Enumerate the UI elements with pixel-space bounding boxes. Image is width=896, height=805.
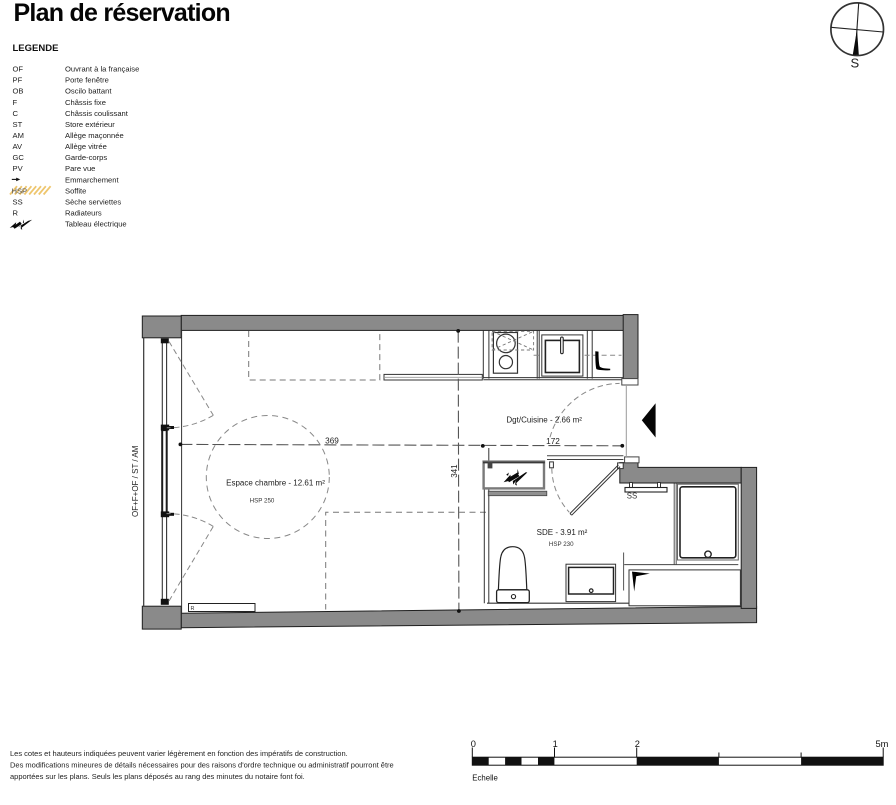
svg-text:Tableau électrique: Tableau électrique	[65, 220, 127, 229]
svg-text:PF: PF	[13, 76, 23, 85]
svg-text:GC: GC	[13, 153, 25, 162]
svg-text:Châssis coulissant: Châssis coulissant	[65, 109, 129, 118]
svg-text:HSP 250: HSP 250	[250, 497, 275, 504]
svg-text:Porte fenêtre: Porte fenêtre	[65, 76, 109, 85]
svg-text:172: 172	[546, 437, 560, 446]
svg-text:Garde-corps: Garde-corps	[65, 153, 107, 162]
svg-text:Echelle: Echelle	[472, 774, 498, 783]
svg-text:Dgt/Cuisine - 2.66 m²: Dgt/Cuisine - 2.66 m²	[506, 415, 582, 424]
svg-text:Ouvrant à la française: Ouvrant à la française	[65, 65, 139, 74]
svg-text:Soffite: Soffite	[65, 186, 86, 195]
svg-text:Allège maçonnée: Allège maçonnée	[65, 131, 124, 140]
svg-text:LEGENDE: LEGENDE	[13, 43, 59, 54]
svg-text:OF+F+OF / ST / AM: OF+F+OF / ST / AM	[131, 445, 140, 517]
svg-text:ST: ST	[13, 120, 23, 129]
svg-text:PV: PV	[13, 164, 24, 173]
svg-text:SDE - 3.91 m²: SDE - 3.91 m²	[537, 528, 588, 537]
svg-text:Allège vitrée: Allège vitrée	[65, 142, 107, 151]
svg-text:341: 341	[450, 464, 459, 478]
svg-text:SS: SS	[627, 492, 637, 501]
svg-text:apportées sur les plans. Seuls: apportées sur les plans. Seuls les plans…	[10, 772, 305, 781]
svg-text:2: 2	[635, 739, 640, 749]
svg-text:OB: OB	[13, 87, 24, 96]
svg-text:AM: AM	[13, 131, 24, 140]
svg-text:369: 369	[325, 437, 339, 446]
svg-text:OF: OF	[13, 65, 24, 74]
svg-text:C: C	[13, 109, 19, 118]
svg-text:Des modifications mineures de: Des modifications mineures de détails né…	[10, 761, 394, 770]
svg-text:Sèche serviettes: Sèche serviettes	[65, 197, 121, 206]
svg-text:Radiateurs: Radiateurs	[65, 209, 102, 218]
svg-text:0: 0	[471, 739, 476, 749]
svg-text:HSP: HSP	[12, 186, 28, 195]
svg-text:Emmarchement: Emmarchement	[65, 175, 119, 184]
svg-text:R: R	[13, 209, 19, 218]
svg-text:1: 1	[553, 739, 558, 749]
svg-text:Oscilo battant: Oscilo battant	[65, 87, 112, 96]
svg-text:S: S	[850, 56, 859, 71]
svg-text:AV: AV	[13, 142, 24, 151]
svg-text:Pare vue: Pare vue	[65, 164, 95, 173]
svg-text:HSP 230: HSP 230	[549, 541, 574, 548]
svg-text:5m: 5m	[876, 739, 889, 749]
svg-text:Espace chambre - 12.61 m²: Espace chambre - 12.61 m²	[226, 479, 325, 488]
svg-text:R: R	[191, 606, 195, 612]
svg-text:Store extérieur: Store extérieur	[65, 120, 115, 129]
svg-text:SS: SS	[13, 197, 23, 206]
svg-text:Châssis fixe: Châssis fixe	[65, 98, 106, 107]
svg-text:F: F	[13, 98, 18, 107]
svg-text:Les cotes et hauteurs indiquée: Les cotes et hauteurs indiquées peuvent …	[10, 749, 348, 758]
svg-text:Plan de réservation: Plan de réservation	[14, 0, 230, 27]
